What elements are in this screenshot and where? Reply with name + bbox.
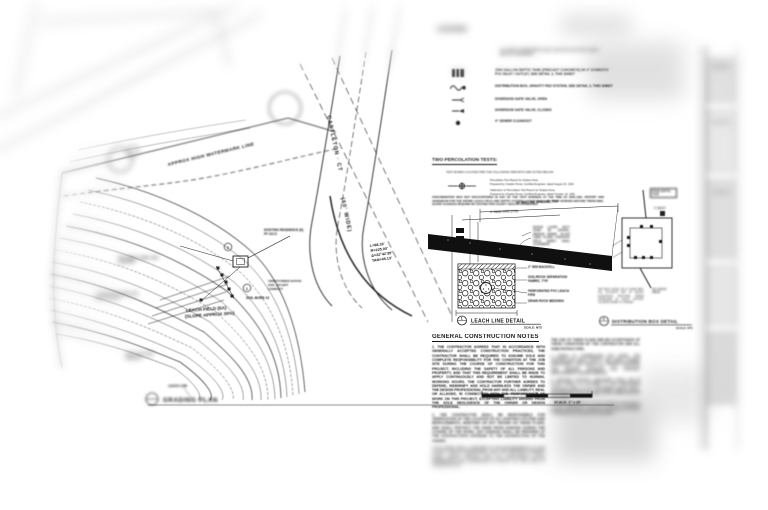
dist-notes: SET BOX LEVEL ON 4" SAND BED. ALL OUTLET… [598, 288, 644, 305]
legend-item-septic-tank: 1500 GALLON SEPTIC TANK (PRECAST CONCRET… [448, 68, 628, 78]
street-lines [300, 50, 452, 322]
leach-detail-title-group: 1 LEACH LINE DETAIL SCALE: NTS [458, 316, 543, 329]
legend-item-label: DISTRIBUTION BOX, GRAVITY FED SYSTEM, SE… [495, 84, 613, 88]
percolation-intro: TEST BORES LOCATED PER THE FOLLOWING REP… [446, 170, 553, 174]
curve-data: L=88.16' R=225.00' Δ=22°42'35" TAN=45.13… [370, 241, 394, 263]
dist-box-detail-drawing [612, 190, 672, 288]
note-paragraph: 1. THE CONTRACTOR AGREES THAT IN ACCORDA… [432, 345, 545, 410]
dim-depth-label: 2' MIN [473, 241, 477, 250]
residence-label: EXISTING RESIDENCE (E) FF 102.5 [264, 228, 304, 236]
street-name-label: CASTLETON · CT [325, 115, 343, 172]
plan-sheet: 2 1 APPROX HIGH WATERMARK LINE CASTLETON… [0, 0, 768, 510]
notes-column-1: 1. THE CONTRACTOR AGREES THAT IN ACCORDA… [432, 345, 545, 467]
leach-label-rock: DRAIN ROCK BEDDING [528, 300, 574, 304]
left-plan-note: 4" SOLID PVC SEWER LINE MIN 2% SLOPE [96, 292, 142, 300]
grading-plan-title: GRADING PLAN [163, 397, 218, 404]
title-block-band [700, 46, 737, 450]
notes-heading: GENERAL CONSTRUCTION NOTES [432, 334, 539, 342]
street-width-label: (60' WIDE) [339, 197, 352, 233]
soil-bore-label: SOIL BORE #2 [246, 296, 269, 300]
note-paragraph: 5. EROSION CONTROL MEASURES SHALL BE IN … [551, 378, 640, 399]
legend-item-label: DIVERSION GATE VALVE, OPEN [495, 97, 613, 101]
leach-label-pipe: PERFORATED PVC LEACH PIPE [528, 290, 574, 298]
dist-detail-title: DISTRIBUTION BOX DETAIL [612, 319, 678, 324]
perc-ref-line: Prepared by Charles Porter, Certified En… [490, 183, 615, 187]
plan-ref-1: 1 [246, 286, 249, 291]
leach-detail-title: LEACH LINE DETAIL [471, 319, 525, 325]
dist-label-outlet: TO LEACH FIELD [652, 288, 674, 295]
dist-detail-scale: SCALE: NTS [676, 326, 693, 330]
legend-heading: LEGEND [437, 26, 467, 33]
legend-item-label: DIVERSION GATE VALVE, CLOSED [495, 108, 613, 112]
left-plan-note: SOIL BORE #1 PERC TEST LOCATION [118, 256, 160, 264]
note-paragraph: 2. THE CONTRACTOR SHALL BE RESPONSIBLE F… [432, 413, 545, 443]
underlay-sheet-corner [0, 2, 262, 152]
underlay-street-above [338, 6, 400, 54]
leach-label-fabric: SOIL/ROCK SEPARATION FABRIC, TYP. [528, 276, 570, 284]
percolation-body: GROUNDWATER WAS NOT ENCOUNTERED IN ANY O… [432, 196, 604, 207]
existing-grade-band [428, 234, 612, 271]
diversion-valve-open-icon [448, 97, 468, 103]
sewer-cleanout-icon [448, 119, 468, 127]
legend-note: ALL SEPTIC COMPONENTS SHALL BE INSTALLED… [500, 48, 610, 56]
leach-callout: NATIVE LAYER: SILTY SAND W/ GRAVEL, MEDI… [533, 226, 570, 247]
legend-item-cleanout: 4" SEWER CLEANOUT [448, 119, 628, 127]
detail-reference-bubbles-plan: 2 1 [224, 243, 251, 292]
left-plan-note: (E) 24" OAK TREE DRIPLINE [126, 352, 168, 360]
leach-line-tag: LEACH LINE [168, 384, 187, 388]
backfill-strip [458, 264, 515, 269]
legend-item-label: 1500 GALLON SEPTIC TANK (PRECAST CONCRET… [495, 68, 613, 77]
dim-pipe-label: 4" PERF PIPE (TYP) [490, 209, 518, 214]
legend-item-label: 4" SEWER CLEANOUT [495, 119, 613, 123]
legend: 1500 GALLON SEPTIC TANK (PRECAST CONCRET… [448, 68, 628, 132]
linework-canvas: 2 1 APPROX HIGH WATERMARK LINE CASTLETON… [0, 0, 768, 510]
septic-tank-icon [448, 68, 468, 78]
note-paragraph: 3. ALL WORK SHALL CONFORM TO THE REQUIRE… [432, 446, 545, 468]
dist-detail-bubble: 2 [603, 317, 605, 321]
native-soil-label: UNDISTURBED NATIVE SOIL, DO NOT COMPACT [268, 280, 302, 291]
legend-item-valve-open: DIVERSION GATE VALVE, OPEN [448, 97, 628, 103]
diversion-valve-closed-icon [448, 108, 468, 114]
legend-item-distribution-box: DISTRIBUTION BOX, GRAVITY FED SYSTEM, SE… [448, 84, 628, 92]
percolation-heading: TWO PERCOLATION TESTS: [432, 158, 497, 165]
leach-label-backfill: 2" MIN BACKFILL [528, 266, 570, 270]
legend-item-valve-closed: DIVERSION GATE VALVE, CLOSED [448, 108, 628, 114]
percolation-heading-text: TWO PERCOLATION TESTS: [432, 158, 497, 165]
dist-label-inlet: 4" INLET [654, 206, 674, 210]
notes-column-2: THE USE OF THESE PLANS IMPLIES ACCEPTANC… [551, 338, 640, 415]
tree-symbols [108, 92, 301, 172]
note-paragraph: THE USE OF THESE PLANS IMPLIES ACCEPTANC… [551, 338, 640, 351]
leach-detail-scale: SCALE: NTS [524, 325, 542, 329]
watermark-label: APPROX HIGH WATERMARK LINE [167, 141, 255, 168]
dist-detail-title-group: 2 DISTRIBUTION BOX DETAIL SCALE: NTS [600, 317, 693, 330]
note-paragraph: 4. PRIOR TO COMMENCING ANY WORK, THE CON… [551, 354, 640, 375]
leach-line-detail-drawing [428, 203, 618, 322]
note-paragraph: 6. FINAL INSPECTION OF THE SYSTEM IS REQ… [551, 402, 640, 415]
perc-ref-line: Percolation Test Report for Subject Area… [490, 179, 615, 183]
dist-label-from: FROM SEPTIC TANK [650, 188, 677, 198]
leach-detail-bubble: 1 [461, 317, 463, 321]
distribution-box-icon [448, 84, 468, 92]
perc-test-symbol [448, 181, 478, 191]
grading-plan-title-group: GRADING PLAN [146, 393, 218, 405]
notes-heading-text: GENERAL CONSTRUCTION NOTES [432, 334, 539, 342]
